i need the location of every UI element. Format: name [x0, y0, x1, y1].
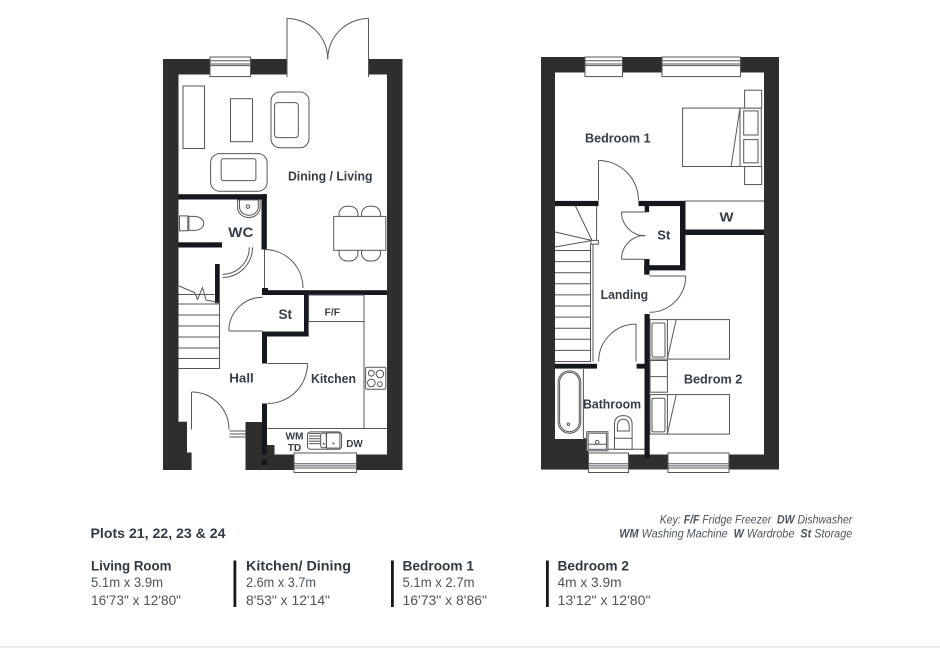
svg-text:8'53" x 12'14": 8'53" x 12'14" [246, 593, 330, 608]
svg-text:Dining / Living: Dining / Living [288, 169, 373, 184]
svg-text:16'73" x 8'86": 16'73" x 8'86" [403, 593, 488, 608]
svg-text:Bedroom 2: Bedroom 2 [558, 558, 630, 574]
svg-text:DW: DW [346, 439, 363, 450]
svg-text:16'73" x 12'80": 16'73" x 12'80" [91, 593, 181, 608]
svg-text:WC: WC [228, 224, 253, 240]
svg-text:4m x 3.9m: 4m x 3.9m [558, 575, 622, 590]
svg-text:Landing: Landing [601, 287, 649, 302]
svg-text:F/F: F/F [325, 308, 341, 319]
svg-text:St: St [657, 228, 671, 243]
svg-text:13'12" x 12'80": 13'12" x 12'80" [558, 593, 651, 608]
svg-text:WM Washing Machine W Wardrobe: WM Washing Machine W Wardrobe St Storage [619, 527, 852, 541]
svg-text:St: St [278, 307, 292, 322]
svg-text:TD: TD [288, 443, 302, 454]
svg-text:WM: WM [286, 432, 304, 443]
svg-text:Kitchen/ Dining: Kitchen/ Dining [246, 558, 351, 574]
svg-text:W: W [720, 210, 735, 225]
svg-text:2.6m x 3.7m: 2.6m x 3.7m [246, 575, 316, 590]
svg-text:Bedroom 1: Bedroom 1 [403, 558, 475, 574]
svg-text:Bedroom 1: Bedroom 1 [585, 131, 651, 146]
svg-text:Plots 21, 22, 23 & 24: Plots 21, 22, 23 & 24 [91, 525, 226, 541]
svg-text:5.1m x 3.9m: 5.1m x 3.9m [91, 575, 163, 590]
svg-text:Bedrom 2: Bedrom 2 [684, 372, 743, 387]
svg-text:Bathroom: Bathroom [583, 396, 641, 411]
svg-text:5.1m x 2.7m: 5.1m x 2.7m [403, 575, 475, 590]
svg-text:Key: F/F Fridge Freezer DW Di: Key: F/F Fridge Freezer DW Dishwasher [660, 513, 853, 527]
svg-text:Hall: Hall [229, 371, 254, 386]
svg-text:Living Room: Living Room [91, 558, 172, 574]
svg-text:Kitchen: Kitchen [311, 371, 356, 386]
